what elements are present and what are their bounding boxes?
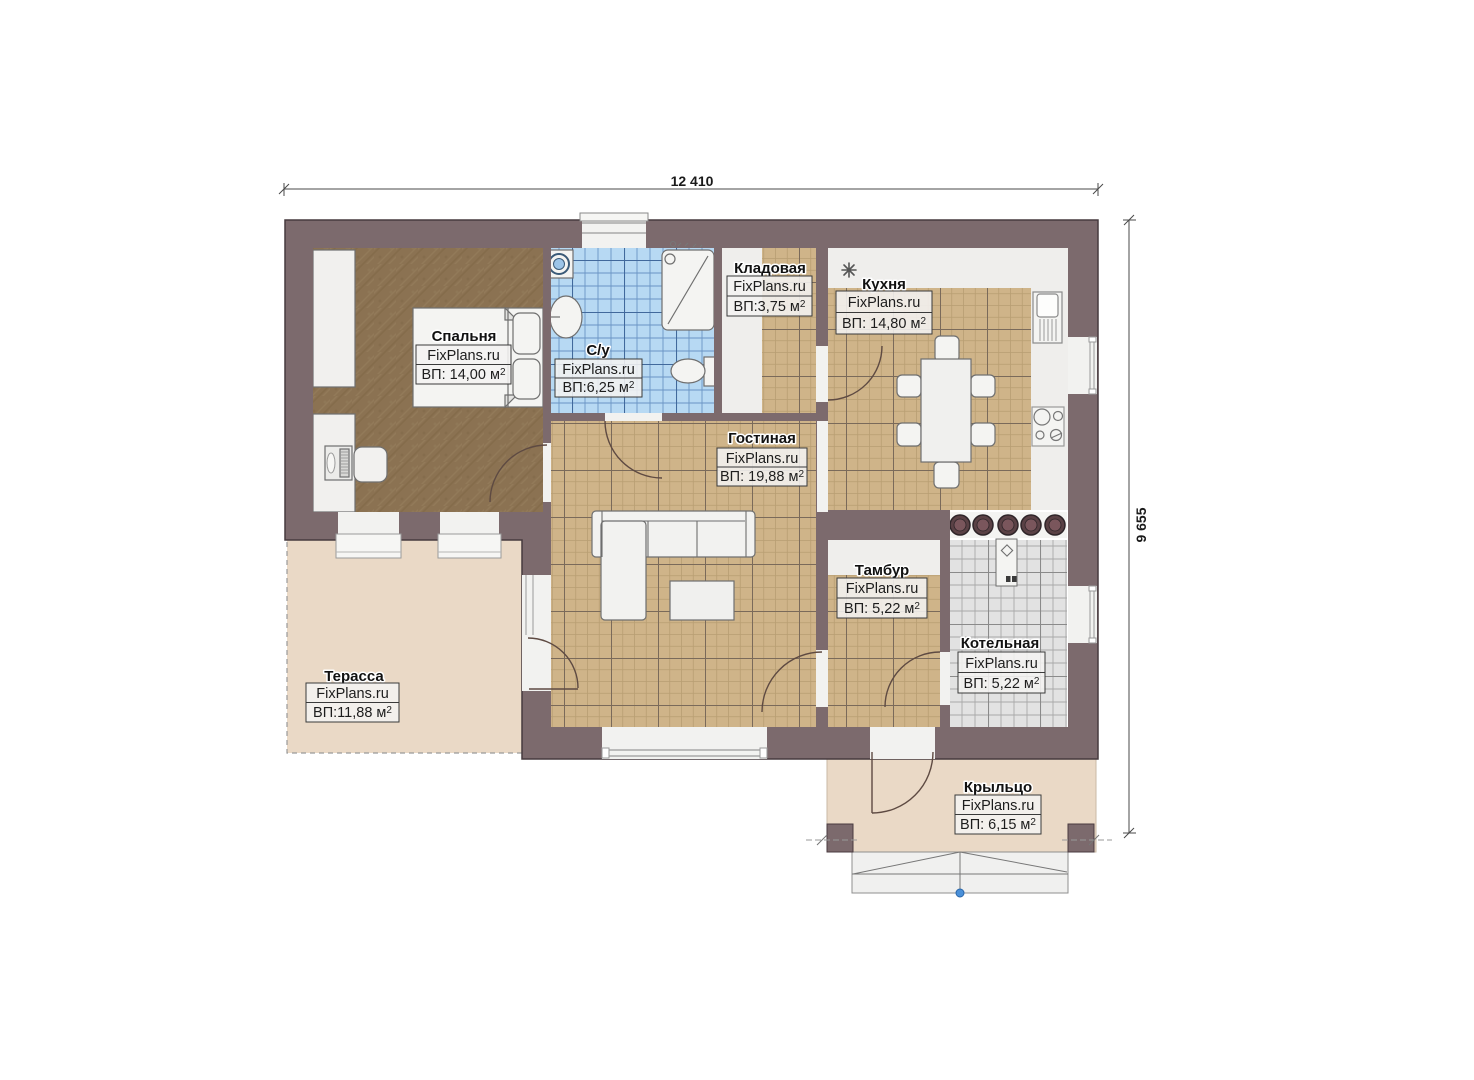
svg-text:FixPlans.ru: FixPlans.ru <box>427 348 500 364</box>
svg-text:Спальня: Спальня <box>432 328 497 345</box>
svg-text:FixPlans.ru: FixPlans.ru <box>848 295 921 311</box>
svg-text:С/у: С/у <box>586 342 610 359</box>
svg-text:Кладовая: Кладовая <box>734 260 806 277</box>
svg-text:FixPlans.ru: FixPlans.ru <box>962 798 1035 814</box>
svg-text:FixPlans.ru: FixPlans.ru <box>846 581 919 597</box>
svg-text:FixPlans.ru: FixPlans.ru <box>733 279 806 295</box>
svg-text:Котельная: Котельная <box>961 635 1040 652</box>
svg-text:ВП: 5,22 м2: ВП: 5,22 м2 <box>964 676 1040 692</box>
svg-text:ВП: 19,88 м2: ВП: 19,88 м2 <box>720 469 804 485</box>
svg-text:ВП: 14,00 м2: ВП: 14,00 м2 <box>422 367 506 383</box>
svg-text:9 655: 9 655 <box>1133 507 1149 542</box>
svg-text:Кухня: Кухня <box>862 276 906 293</box>
svg-text:ВП:11,88 м2: ВП:11,88 м2 <box>313 705 392 721</box>
svg-text:ВП:3,75 м2: ВП:3,75 м2 <box>734 299 806 315</box>
svg-text:ВП: 14,80 м2: ВП: 14,80 м2 <box>842 316 926 332</box>
svg-text:Тамбур: Тамбур <box>855 562 909 579</box>
svg-text:ВП: 5,22 м2: ВП: 5,22 м2 <box>844 601 920 617</box>
svg-text:Крыльцо: Крыльцо <box>964 779 1032 796</box>
svg-text:ВП:6,25 м2: ВП:6,25 м2 <box>563 380 635 396</box>
svg-text:Гостиная: Гостиная <box>728 430 796 447</box>
svg-text:FixPlans.ru: FixPlans.ru <box>562 362 635 378</box>
svg-text:FixPlans.ru: FixPlans.ru <box>316 686 389 702</box>
svg-text:ВП: 6,15 м2: ВП: 6,15 м2 <box>960 817 1036 833</box>
svg-text:12 410: 12 410 <box>671 173 714 189</box>
svg-text:Терасса: Терасса <box>324 668 384 685</box>
svg-text:FixPlans.ru: FixPlans.ru <box>965 656 1038 672</box>
svg-text:FixPlans.ru: FixPlans.ru <box>726 451 799 467</box>
